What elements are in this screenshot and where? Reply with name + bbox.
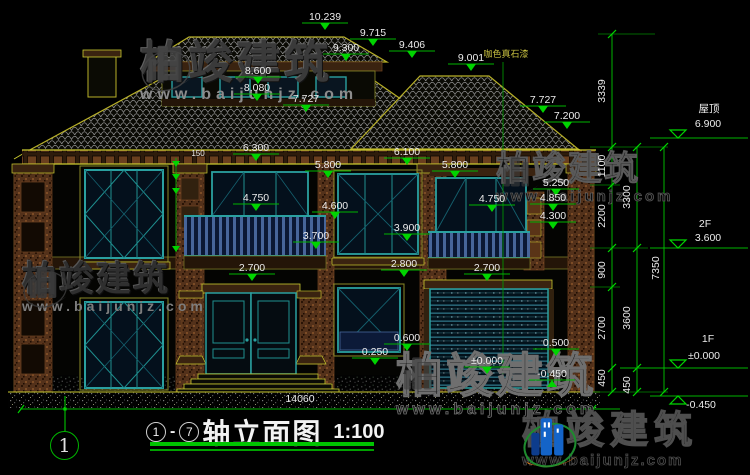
garage-door (424, 280, 554, 388)
entrance-steps (177, 374, 339, 394)
dormer-window (268, 77, 298, 97)
axis-range-dash: - (170, 423, 175, 441)
right-balcony-railing (428, 232, 530, 269)
cornice (22, 150, 596, 164)
drawing-scale: 1:100 (333, 421, 384, 444)
chimney (83, 50, 121, 97)
entrance-door (176, 284, 326, 374)
window-2f-center-right (332, 170, 424, 265)
dormer (152, 62, 382, 106)
cad-drawing-canvas: 柏竣建筑 www.baijunjz.com 柏竣建筑 www.baijunjz.… (0, 0, 750, 475)
axis-bubble-label: 1 (58, 435, 70, 457)
dormer-window (316, 77, 346, 97)
title-underline-thin (150, 449, 374, 451)
dim-ticks (608, 30, 668, 396)
window-1f-center-right (334, 284, 404, 356)
center-balcony-railing (184, 216, 326, 269)
dormer-window (172, 77, 202, 97)
center-window-2f (212, 172, 308, 216)
axis-start-bubble: 1 (146, 422, 166, 442)
left-window-1f (80, 298, 168, 390)
drawing-title: 1 - 7 轴立面图 1:100 (146, 412, 385, 452)
axis-end-bubble: 7 (179, 422, 199, 442)
brand-logo: 柏竣建筑 www.baijunjz.com (522, 412, 698, 468)
level-lines (620, 130, 748, 404)
title-underline-thick (150, 442, 374, 446)
axis-bubble: 1 (50, 431, 79, 460)
elevation-drawing (0, 0, 750, 475)
right-window-2f (430, 168, 542, 232)
brand-logo-icon (522, 412, 580, 470)
dormer-window (220, 77, 250, 97)
drawing-title-text: 轴立面图 (202, 412, 322, 452)
left-window-2f (78, 166, 170, 269)
